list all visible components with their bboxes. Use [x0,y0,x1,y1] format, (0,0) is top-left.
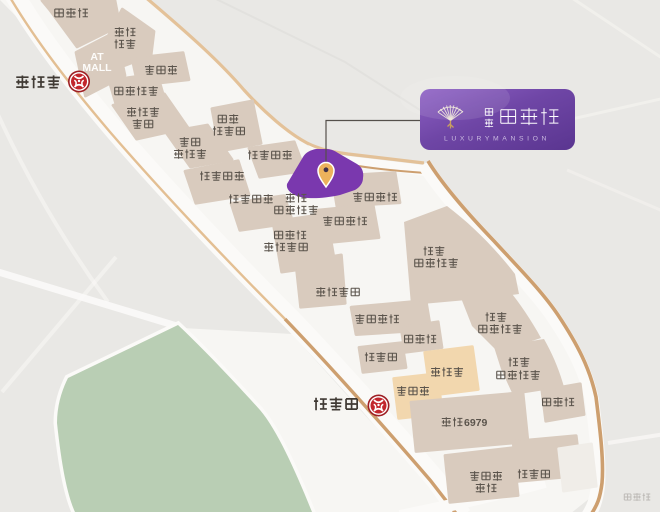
svg-text:MALL: MALL [82,62,112,74]
svg-text:6979: 6979 [464,417,488,429]
svg-text:LUXURYMANSION: LUXURYMANSION [444,136,550,143]
